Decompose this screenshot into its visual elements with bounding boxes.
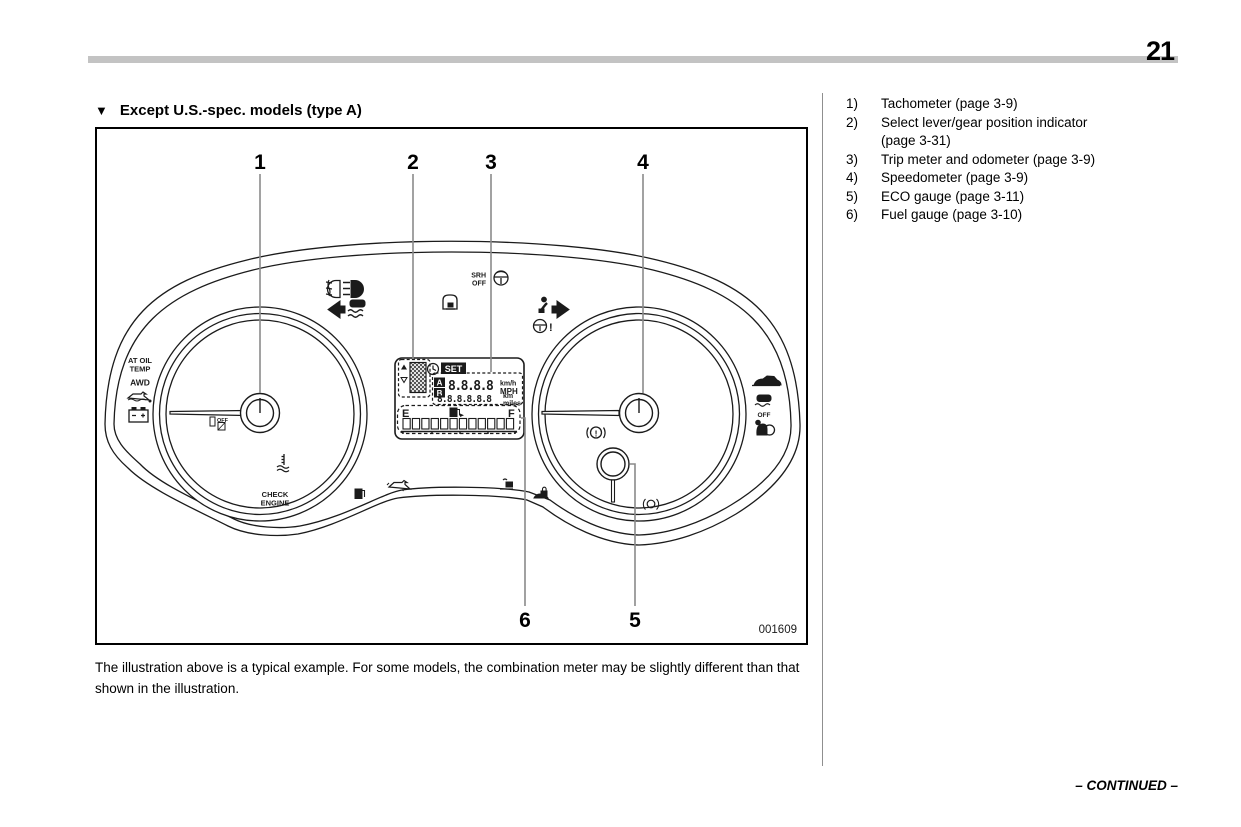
callout-6: 6 — [519, 609, 531, 632]
legend-item-trip-odometer: 3) Trip meter and odometer (page 3-9) — [846, 151, 1216, 170]
off-mini-label: OFF — [217, 418, 229, 424]
callout-2: 2 — [407, 151, 419, 174]
figure-code: 001609 — [759, 624, 797, 636]
gear-position-indicator — [410, 363, 426, 393]
door-open-icon — [443, 295, 457, 309]
combination-meter-illustration: SET A B 8.8.8.8 8.8.8.8.8.8 km/h MPH km … — [97, 129, 806, 643]
at-oil-temp-label: TEMP — [130, 365, 151, 374]
vdc-off-icon: OFF — [755, 395, 771, 419]
legend-item-tachometer: 1) Tachometer (page 3-9) — [846, 95, 1216, 114]
unit-miles: miles — [503, 401, 521, 408]
lcd-panel: SET A B 8.8.8.8 8.8.8.8.8.8 km/h MPH km … — [395, 358, 524, 439]
odometer-digits: 8.8.8.8.8.8 — [437, 394, 492, 405]
steering-wheel-icon — [494, 271, 508, 285]
legend-item-eco-gauge: 5) ECO gauge (page 3-11) — [846, 188, 1216, 207]
trip-a-label: A — [437, 378, 443, 387]
high-beam-icon — [343, 281, 364, 298]
srh-off-label: OFF — [472, 281, 487, 288]
left-edge-indicators: AT OIL TEMP AWD — [128, 356, 152, 422]
figure-caption: The illustration above is a typical exam… — [95, 657, 817, 699]
check-engine-label: ENGINE — [261, 499, 290, 508]
steering-exclaim: ! — [549, 322, 553, 334]
exhaust-icon — [500, 479, 513, 489]
oil-level-icon — [128, 392, 151, 402]
srh-label: SRH — [471, 273, 486, 280]
warning-lamp-icons-top: SRH OFF ! — [326, 271, 569, 334]
callout-1: 1 — [254, 151, 266, 174]
trip-meter-digits: 8.8.8.8 — [448, 379, 494, 394]
legend-item-speedometer: 4) Speedometer (page 3-9) — [846, 169, 1216, 188]
power-steering-warning-icon: ! — [534, 320, 553, 335]
right-edge-indicators: OFF — [752, 376, 781, 435]
right-turn-arrow-icon — [552, 301, 569, 318]
unit-km: km — [503, 393, 513, 400]
legend-item-gear-indicator: 2) Select lever/gear position indicator — [846, 114, 1216, 133]
security-indicator-icon — [534, 487, 548, 498]
section-marker-icon: ▼ — [95, 103, 108, 118]
leader-6 — [521, 418, 525, 606]
airbag-icon — [756, 420, 775, 435]
low-fuel-icon — [355, 489, 365, 499]
fog-light-icon — [326, 280, 340, 298]
vdc-off-label: OFF — [758, 412, 771, 419]
header-rule — [88, 56, 1178, 63]
column-divider — [822, 93, 823, 766]
brake-exclaim: ! — [595, 428, 598, 438]
legend-item-gear-indicator-page: (page 3-31) — [881, 132, 1216, 151]
callout-3: 3 — [485, 151, 497, 174]
left-turn-arrow-icon — [328, 301, 345, 318]
legend-list: 1) Tachometer (page 3-9) 2) Select lever… — [846, 95, 1216, 225]
combination-meter-figure: SET A B 8.8.8.8 8.8.8.8.8.8 km/h MPH km … — [95, 127, 808, 645]
page-number: 21 — [1138, 36, 1182, 67]
continued-label: – CONTINUED – — [1075, 778, 1178, 793]
callout-5: 5 — [629, 609, 641, 632]
section-heading: ▼ Except U.S.-spec. models (type A) — [95, 102, 362, 119]
battery-icon — [129, 408, 148, 423]
vdc-indicator-icon — [348, 300, 365, 317]
section-title: Except U.S.-spec. models (type A) — [120, 102, 362, 119]
car-trouble-icon — [752, 376, 781, 386]
callout-4: 4 — [637, 151, 649, 174]
set-label: SET — [445, 364, 463, 374]
legend-item-fuel-gauge: 6) Fuel gauge (page 3-10) — [846, 206, 1216, 225]
seat-belt-icon — [539, 297, 547, 312]
awd-label: AWD — [130, 378, 150, 388]
